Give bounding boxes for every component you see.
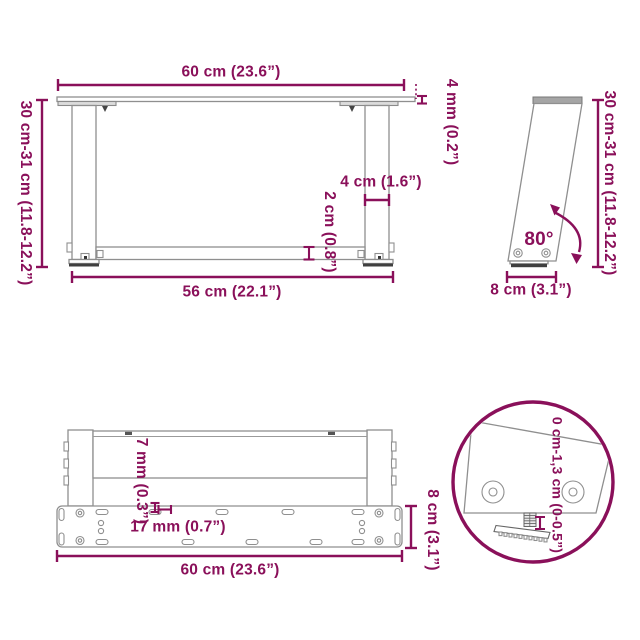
slot-hole: [282, 510, 294, 515]
screw-right: [349, 106, 355, 112]
table-leg-dimension-drawing: 60 cm (23.6”) 30 cm-31 cm (11.8-12.2”) 4…: [0, 0, 640, 640]
slot-hole: [96, 510, 108, 515]
side-screw-right: [542, 249, 550, 257]
front-dim-width-top: [58, 79, 404, 91]
detail-threaded-bolt: [524, 513, 536, 527]
front-dim-width-bottom: [72, 271, 393, 283]
bottom-width-label: 60 cm (23.6”): [180, 562, 279, 579]
slot-hole: [59, 509, 64, 521]
beam-screw-right: [328, 432, 335, 435]
slot-hole: [395, 533, 400, 545]
detail-screw-left: [482, 481, 504, 503]
side-foot-pad: [511, 264, 547, 267]
pin-hole: [98, 528, 103, 533]
side-angle-label: 80°: [524, 229, 553, 250]
bottom-sheet-thickness-label: 7 mm (0.3”): [133, 438, 150, 525]
front-dim-height-left: [36, 100, 48, 267]
screw-hole: [375, 509, 383, 517]
bottom-leg-right: [367, 430, 392, 506]
foot-pad-right: [363, 264, 393, 267]
leg-tab-left: [67, 243, 72, 252]
crossbar-bracket-right: [358, 251, 364, 258]
slot-hole: [59, 533, 64, 545]
slot-hole: [310, 540, 322, 545]
slot-hole: [352, 540, 364, 545]
pin-hole: [98, 520, 103, 525]
leg-tab: [392, 442, 397, 451]
screw-left: [102, 106, 108, 112]
side-screw-left: [514, 249, 522, 257]
leg-tab: [392, 459, 397, 468]
front-width-bottom-label: 56 cm (22.1”): [182, 284, 281, 301]
leg-tab: [64, 459, 69, 468]
front-crossbar-thickness-label: 2 cm (0.8”): [321, 191, 338, 272]
pin-hole: [359, 520, 364, 525]
bottom-plate-depth-label: 8 cm (3.1”): [424, 489, 441, 570]
front-width-top-label: 60 cm (23.6”): [181, 64, 280, 81]
side-mounting-cap: [533, 97, 582, 104]
side-foot-plate: [510, 261, 548, 264]
slot-hole: [216, 510, 228, 515]
screw-hole: [375, 537, 383, 545]
beam-screw-left: [125, 432, 132, 435]
leg-tab: [64, 442, 69, 451]
screw-hole: [76, 537, 84, 545]
bottom-leg-left: [68, 430, 93, 506]
base-plate: [57, 506, 402, 547]
tabletop: [57, 97, 415, 102]
side-foot-depth-label: 8 cm (3.1”): [490, 282, 571, 299]
pin-hole: [359, 528, 364, 533]
foot-adjuster-dot-right: [378, 256, 381, 259]
crossbar-bracket-left: [97, 251, 103, 258]
slot-hole: [395, 509, 400, 521]
bottom-dim-width: [57, 550, 402, 562]
slot-hole: [96, 540, 108, 545]
slot-hole: [182, 540, 194, 545]
side-view: 80° 30 cm-31 cm (11.8-12.2”) 8 cm (3.1”): [490, 91, 618, 299]
bottom-slot-length-label: 17 mm (0.7”): [130, 519, 225, 536]
detail-view: 0 cm-1,3 cm (0-0.5”): [453, 402, 613, 562]
slot-hole: [246, 540, 258, 545]
front-dim-top-thickness: [416, 84, 427, 104]
bottom-dim-plate-depth: [405, 506, 417, 548]
foot-plate-right: [363, 260, 393, 264]
foot-plate-left: [69, 260, 99, 264]
front-leg-width-label: 4 cm (1.6”): [340, 174, 421, 191]
side-height-label: 30 cm-31 cm (11.8-12.2”): [601, 91, 618, 276]
bottom-view: 7 mm (0.3”) 17 mm (0.7”) 8 cm (3.1”) 60 …: [57, 430, 441, 579]
foot-pad-left: [69, 264, 99, 267]
detail-adjust-range-label: 0 cm-1,3 cm (0-0.5”): [550, 417, 566, 553]
foot-adjuster-dot-left: [84, 256, 87, 259]
leg-tab: [64, 476, 69, 485]
leg-tab-right: [389, 243, 394, 252]
slot-hole: [352, 510, 364, 515]
front-top-thickness-label: 4 mm (0.2”): [443, 79, 460, 166]
leg-tab: [392, 476, 397, 485]
front-leg-left: [72, 106, 96, 260]
front-height-left-label: 30 cm-31 cm (11.8-12.2”): [17, 101, 34, 286]
dimension-diagram-canvas: 60 cm (23.6”) 30 cm-31 cm (11.8-12.2”) 4…: [0, 0, 640, 640]
screw-hole: [76, 509, 84, 517]
front-view: 60 cm (23.6”) 30 cm-31 cm (11.8-12.2”) 4…: [17, 64, 460, 301]
